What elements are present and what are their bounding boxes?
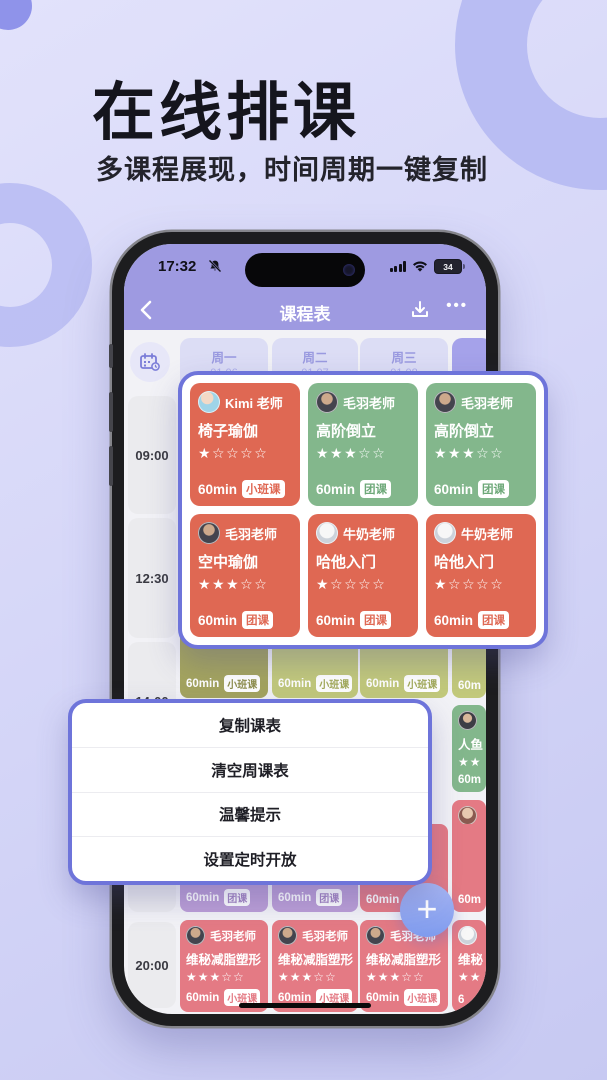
teacher-avatar [316, 391, 338, 413]
cellular-signal-icon [390, 261, 407, 272]
teacher-row: Kimi 老师 [198, 391, 292, 413]
teacher-avatar [316, 522, 338, 544]
course-name: 人鱼 [458, 734, 480, 753]
course-meta: 60min 团课 [186, 889, 262, 906]
promo-page: 在线排课 多课程展现，时间周期一键复制 17:32 [0, 0, 607, 1080]
course-card[interactable]: 毛羽老师 维秘减脂塑形 ★★★☆☆ 60min 小班课 [272, 920, 358, 1012]
teacher-avatar [434, 522, 456, 544]
course-card[interactable]: 维秘 ★★ 6 [452, 920, 486, 1012]
course-meta: 60min 团课 [434, 611, 528, 629]
star-rating: ★★★☆☆ [366, 970, 442, 984]
dynamic-island [245, 253, 365, 287]
course-card[interactable]: 毛羽老师 维秘减脂塑形 ★★★☆☆ 60min 小班课 [180, 920, 268, 1012]
duration: 60min [366, 894, 399, 906]
course-meta: 60m [458, 894, 480, 906]
mute-bell-icon [208, 259, 222, 273]
app-header: 17:32 34 [124, 244, 486, 330]
teacher-avatar [458, 926, 477, 945]
time-slot-1230: 12:30 [128, 518, 176, 638]
menu-item-copy-schedule[interactable]: 复制课表 [72, 703, 428, 747]
duration: 60min [278, 992, 311, 1004]
course-name: 哈他入门 [316, 551, 410, 572]
class-type-badge: 团课 [478, 611, 509, 629]
add-course-fab[interactable]: + [400, 883, 454, 937]
course-name: 哈他入门 [434, 551, 528, 572]
status-bar: 17:32 34 [124, 244, 486, 294]
teacher-row: 牛奶老师 [434, 522, 528, 544]
duration: 60m [458, 680, 481, 692]
duration: 60min [198, 482, 237, 497]
course-card[interactable]: 人鱼 ★★ 60m [452, 705, 486, 792]
teacher-name: 毛羽老师 [302, 928, 348, 944]
duration: 60min [198, 613, 237, 628]
course-cards-popup: Kimi 老师 椅子瑜伽 ★☆☆☆☆ 60min 小班课 毛羽老师 高阶倒立 ★… [178, 371, 548, 649]
class-type-badge: 小班课 [242, 480, 285, 498]
star-rating: ★★★☆☆ [278, 970, 352, 984]
time-slot-2000: 20:00 [128, 922, 176, 1008]
course-name: 空中瑜伽 [198, 551, 292, 572]
teacher-row [458, 926, 480, 945]
menu-item-schedule-open-time[interactable]: 设置定时开放 [72, 836, 428, 881]
teacher-name: 毛羽老师 [225, 524, 277, 543]
page-title: 在线排课 [92, 62, 360, 153]
wifi-icon [412, 261, 428, 273]
camera-dot-icon [343, 264, 355, 276]
teacher-avatar [278, 926, 297, 945]
course-card[interactable]: 60m [452, 824, 486, 912]
duration: 60min [434, 482, 473, 497]
teacher-avatar [458, 711, 477, 730]
star-rating: ★★ [458, 755, 480, 769]
course-meta: 60min 小班课 [366, 675, 442, 692]
course-meta: 60min 小班课 [186, 675, 262, 692]
course-card[interactable]: 毛羽老师 高阶倒立 ★★★☆☆ 60min 团课 [308, 383, 418, 506]
course-meta: 60min 团课 [198, 611, 292, 629]
teacher-name: Kimi 老师 [225, 393, 283, 412]
nav-bar: 课程表 ••• [124, 294, 486, 330]
duration: 6 [458, 994, 464, 1006]
course-card[interactable]: 牛奶老师 哈他入门 ★☆☆☆☆ 60min 团课 [426, 514, 536, 637]
status-time: 17:32 [158, 258, 196, 275]
battery-icon: 34 [434, 259, 462, 274]
duration: 60min [186, 992, 219, 1004]
phone-mute-switch [109, 344, 113, 368]
page-subtitle: 多课程展现，时间周期一键复制 [96, 148, 488, 187]
status-icons: 34 [390, 259, 463, 274]
class-type-badge: 团课 [478, 480, 509, 498]
teacher-avatar [198, 522, 220, 544]
course-name: 高阶倒立 [316, 420, 410, 441]
star-rating: ★☆☆☆☆ [316, 576, 410, 593]
weekday-label: 周一 [180, 347, 268, 366]
calendar-button[interactable] [130, 342, 170, 382]
course-meta: 60min 团课 [316, 611, 410, 629]
teacher-name: 牛奶老师 [461, 524, 513, 543]
class-type-badge: 团课 [316, 889, 342, 906]
class-type-badge: 小班课 [404, 675, 440, 692]
decor-ring-left-icon [0, 183, 92, 347]
course-name: 维秘减脂塑形 [278, 949, 352, 968]
screen-title: 课程表 [280, 300, 331, 325]
class-type-badge: 团课 [224, 889, 250, 906]
star-rating: ★☆☆☆☆ [198, 445, 292, 462]
menu-item-tips[interactable]: 温馨提示 [72, 792, 428, 837]
duration: 60min [186, 892, 219, 904]
star-rating: ★☆☆☆☆ [434, 576, 528, 593]
class-type-badge: 团课 [242, 611, 273, 629]
duration: 60min [278, 892, 311, 904]
course-meta: 60min 团课 [316, 480, 410, 498]
class-type-badge: 团课 [360, 611, 391, 629]
course-meta: 60min 小班课 [198, 480, 292, 498]
teacher-name: 毛羽老师 [343, 393, 395, 412]
course-meta: 60min 团课 [278, 889, 352, 906]
course-card[interactable]: 牛奶老师 哈他入门 ★☆☆☆☆ 60min 团课 [308, 514, 418, 637]
course-meta: 60min 小班课 [278, 675, 352, 692]
course-meta: 60m [458, 680, 480, 692]
duration: 60min [366, 678, 399, 690]
more-options-icon[interactable]: ••• [446, 297, 468, 314]
duration: 60min [316, 613, 355, 628]
star-rating: ★★★☆☆ [198, 576, 292, 593]
teacher-row [458, 806, 480, 825]
class-type-badge: 小班课 [224, 675, 260, 692]
teacher-name: 毛羽老师 [210, 928, 256, 944]
course-meta: 60m [458, 774, 480, 786]
star-rating: ★★ [458, 970, 480, 984]
course-meta: 60min 小班课 [366, 989, 442, 1006]
home-indicator [239, 1003, 371, 1008]
phone-volume-up-button [109, 392, 113, 432]
teacher-row [458, 711, 480, 730]
teacher-row: 毛羽老师 [186, 926, 262, 945]
teacher-avatar [366, 926, 385, 945]
teacher-row: 牛奶老师 [316, 522, 410, 544]
duration: 60min [434, 613, 473, 628]
duration: 60min [186, 678, 219, 690]
phone-volume-down-button [109, 446, 113, 486]
calendar-icon [139, 352, 161, 372]
duration: 60m [458, 894, 481, 906]
weekday-label: 周三 [360, 347, 448, 366]
course-name: 椅子瑜伽 [198, 420, 292, 441]
course-card[interactable]: 毛羽老师 高阶倒立 ★★★☆☆ 60min 团课 [426, 383, 536, 506]
decor-circle-topleft-icon [0, 0, 32, 30]
star-rating: ★★★☆☆ [316, 445, 410, 462]
teacher-row: 毛羽老师 [278, 926, 352, 945]
course-card[interactable]: Kimi 老师 椅子瑜伽 ★☆☆☆☆ 60min 小班课 [190, 383, 300, 506]
context-menu: 复制课表 清空周课表 温馨提示 设置定时开放 [68, 699, 432, 885]
star-rating: ★★★☆☆ [186, 970, 262, 984]
teacher-row: 毛羽老师 [434, 391, 528, 413]
course-meta: 6 [458, 994, 480, 1006]
duration: 60min [316, 482, 355, 497]
duration: 60m [458, 774, 481, 786]
teacher-avatar [458, 806, 477, 825]
class-type-badge: 团课 [360, 480, 391, 498]
teacher-name: 牛奶老师 [343, 524, 395, 543]
class-type-badge: 小班课 [316, 675, 352, 692]
back-icon[interactable] [140, 300, 152, 320]
course-name: 维秘减脂塑形 [186, 949, 262, 968]
course-card[interactable]: 毛羽老师 空中瑜伽 ★★★☆☆ 60min 团课 [190, 514, 300, 637]
course-meta: 60min 团课 [434, 480, 528, 498]
teacher-row: 毛羽老师 [316, 391, 410, 413]
menu-item-clear-week[interactable]: 清空周课表 [72, 747, 428, 792]
weekday-label: 周二 [272, 347, 358, 366]
teacher-avatar [198, 391, 220, 413]
teacher-name: 毛羽老师 [461, 393, 513, 412]
plus-icon: + [416, 891, 437, 927]
download-icon[interactable] [410, 300, 430, 320]
teacher-avatar [434, 391, 456, 413]
course-name: 维秘 [458, 949, 480, 968]
course-name: 维秘减脂塑形 [366, 949, 442, 968]
teacher-row: 毛羽老师 [198, 522, 292, 544]
teacher-avatar [186, 926, 205, 945]
duration: 60min [278, 678, 311, 690]
time-slot-0900: 09:00 [128, 396, 176, 514]
class-type-badge: 小班课 [404, 989, 440, 1006]
star-rating: ★★★☆☆ [434, 445, 528, 462]
course-name: 高阶倒立 [434, 420, 528, 441]
duration: 60min [366, 992, 399, 1004]
